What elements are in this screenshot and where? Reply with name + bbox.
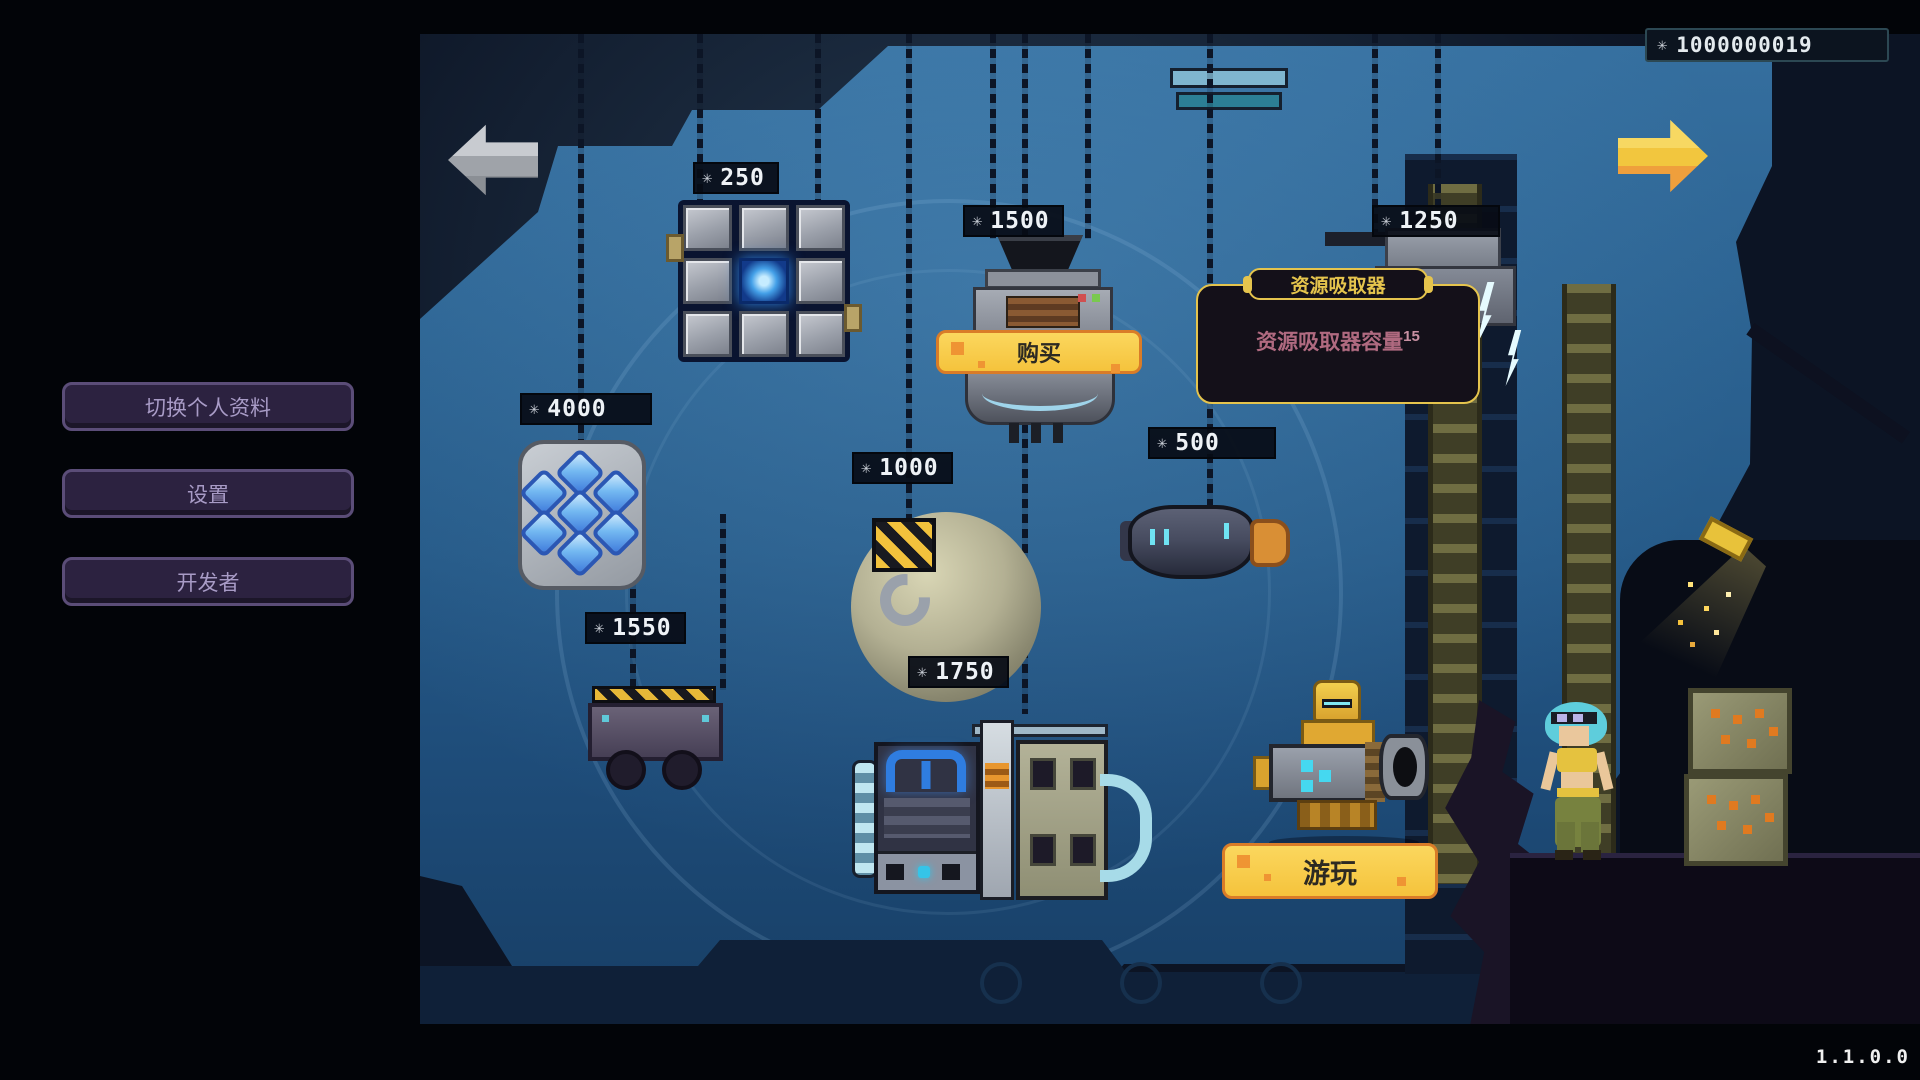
resource-icon: ✳ — [529, 401, 540, 418]
metal-tile — [683, 311, 732, 357]
metal-tile — [796, 258, 845, 304]
shop-item-thruster-pod[interactable] — [1128, 505, 1290, 585]
goggles — [1551, 712, 1597, 724]
metal-tile — [796, 311, 845, 357]
window — [1070, 758, 1096, 790]
hanging-chain — [815, 34, 821, 204]
hanging-chain — [720, 514, 726, 690]
price-tag-crane-hook: ✳ 1000 — [852, 452, 953, 484]
window — [1030, 834, 1056, 866]
price-value: 500 — [1175, 430, 1220, 456]
leg — [1557, 822, 1575, 852]
resource-icon: ✳ — [972, 213, 983, 230]
shop-item-crane-hook[interactable] — [872, 518, 936, 572]
resource-icon: ✳ — [861, 460, 872, 477]
robot-character — [1261, 680, 1426, 850]
price-value: 250 — [720, 165, 765, 191]
face — [1559, 726, 1589, 746]
price-value: 1000 — [879, 455, 938, 481]
resource-icon: ✳ — [1657, 35, 1668, 55]
price-tag-resource-absorber: ✳ 1500 — [963, 205, 1064, 237]
copper-coil — [1006, 296, 1080, 328]
price-tag-thruster-pod: ✳ 500 — [1148, 427, 1276, 459]
boot — [1583, 850, 1601, 860]
hanging-chain — [578, 34, 584, 444]
hanging-chain — [1085, 34, 1091, 239]
price-value: 1750 — [935, 659, 994, 685]
version-label: 1.1.0.0 — [1816, 1046, 1910, 1068]
window — [942, 864, 960, 880]
metal-tile — [739, 311, 788, 357]
window — [886, 864, 904, 880]
robot-skirt — [1297, 800, 1377, 830]
mechanic-character — [1533, 702, 1625, 860]
mount-tab — [844, 304, 862, 332]
center-column — [980, 720, 1014, 900]
belt — [1557, 788, 1599, 797]
robot-visor — [1322, 699, 1352, 708]
resource-icon: ✳ — [1157, 435, 1168, 452]
vent — [1053, 423, 1063, 443]
sparks — [1688, 582, 1693, 587]
boot — [1555, 850, 1573, 860]
leg — [1581, 822, 1599, 852]
porthole — [1120, 962, 1162, 1004]
cyan-slit — [1224, 523, 1229, 539]
green-light — [1092, 294, 1100, 302]
orange-markings — [1707, 795, 1716, 804]
stat-label: 资源吸取器容量 — [1256, 331, 1403, 354]
cyan-light — [918, 866, 930, 878]
resource-icon: ✳ — [702, 170, 713, 187]
price-value: 1250 — [1399, 208, 1458, 234]
price-tag-claw-machine: ✳ 1550 — [585, 612, 686, 644]
blue-coil — [886, 750, 966, 792]
currency-value: 1000000019 — [1676, 33, 1812, 57]
claw-body — [588, 703, 723, 761]
price-value: 1500 — [990, 208, 1049, 234]
top — [1557, 748, 1597, 772]
resource-icon: ✳ — [594, 620, 605, 637]
orange-coil — [985, 763, 1009, 789]
orange-markings — [1711, 709, 1720, 718]
robot-head — [1313, 680, 1361, 722]
item-tooltip: 资源吸取器 资源吸取器容量15 — [1196, 268, 1480, 404]
porthole — [1260, 962, 1302, 1004]
cyan-squares — [1301, 760, 1313, 772]
metal-tile — [739, 205, 788, 251]
hanging-chain — [1435, 34, 1441, 234]
shop-item-generator[interactable] — [852, 712, 1110, 908]
metal-tile — [796, 205, 845, 251]
claw-pod — [606, 750, 646, 790]
pipe — [1176, 92, 1282, 110]
resource-icon: ✳ — [1381, 213, 1392, 230]
tooltip-stat: 资源吸取器容量15 — [1196, 326, 1480, 356]
cannon-muzzle — [1379, 734, 1429, 800]
currency-counter: ✳ 1000000019 — [1645, 28, 1889, 62]
generator-left-module — [874, 742, 980, 894]
shop-scene: ✳ 250 ✳ 1500 ✳ 1250 ✳ 4000 ✳ 1000 ✳ 500 … — [420, 34, 1920, 1024]
shop-item-claw-machine[interactable] — [588, 686, 723, 798]
lamp-arm — [1746, 323, 1910, 443]
cyan-arc — [982, 376, 1098, 411]
red-light — [1078, 294, 1086, 302]
settings-button[interactable]: 设置 — [62, 469, 354, 518]
bumper — [878, 851, 976, 890]
vent — [1031, 423, 1041, 443]
cargo-crate — [1684, 774, 1788, 866]
switch-profile-button[interactable]: 切换个人资料 — [62, 382, 354, 431]
metal-tile — [683, 205, 732, 251]
slats — [884, 798, 970, 838]
collar — [985, 269, 1101, 289]
metal-tile — [683, 258, 732, 304]
arm — [1595, 751, 1614, 790]
price-tag-circuit-core-block: ✳ 250 — [693, 162, 779, 194]
prev-page-arrow-icon[interactable] — [448, 120, 538, 200]
midriff — [1561, 772, 1593, 788]
price-value: 1550 — [612, 615, 671, 641]
price-tag-crystal-cluster: ✳ 4000 — [520, 393, 652, 425]
price-value: 4000 — [547, 396, 606, 422]
hanging-chain — [1372, 34, 1378, 234]
buy-button[interactable]: 购买 — [936, 330, 1142, 374]
tooltip-title: 资源吸取器 — [1248, 268, 1428, 300]
pipe — [1170, 68, 1288, 88]
pod-body — [1128, 505, 1254, 579]
cpu-core — [739, 258, 788, 304]
price-tag-right-machine: ✳ 1250 — [1372, 205, 1500, 237]
vent — [1009, 423, 1019, 443]
pod-nose — [1250, 519, 1290, 567]
shop-item-circuit-core-block[interactable] — [678, 200, 850, 362]
generator-right-module — [1016, 740, 1108, 900]
price-tag-generator: ✳ 1750 — [908, 656, 1009, 688]
stat-value: 15 — [1403, 328, 1420, 345]
teal-accent — [702, 715, 709, 722]
play-button[interactable]: 游玩 — [1222, 843, 1438, 899]
teal-accent — [602, 715, 609, 722]
hazard-bar — [592, 686, 716, 703]
window — [1030, 758, 1056, 790]
porthole — [980, 962, 1022, 1004]
hanging-chain — [906, 34, 912, 520]
claw-pod — [662, 750, 702, 790]
shop-item-crystal-cluster[interactable] — [518, 438, 646, 593]
developer-button[interactable]: 开发者 — [62, 557, 354, 606]
resource-icon: ✳ — [917, 664, 928, 681]
right-platform — [1510, 853, 1920, 1024]
cyan-slit — [1150, 529, 1155, 545]
cargo-crate — [1688, 688, 1792, 774]
window — [1070, 834, 1096, 866]
game-screen: ✳ 250 ✳ 1500 ✳ 1250 ✳ 4000 ✳ 1000 ✳ 500 … — [0, 0, 1920, 1080]
cyan-slit — [1164, 529, 1169, 545]
mount-tab — [666, 234, 684, 262]
